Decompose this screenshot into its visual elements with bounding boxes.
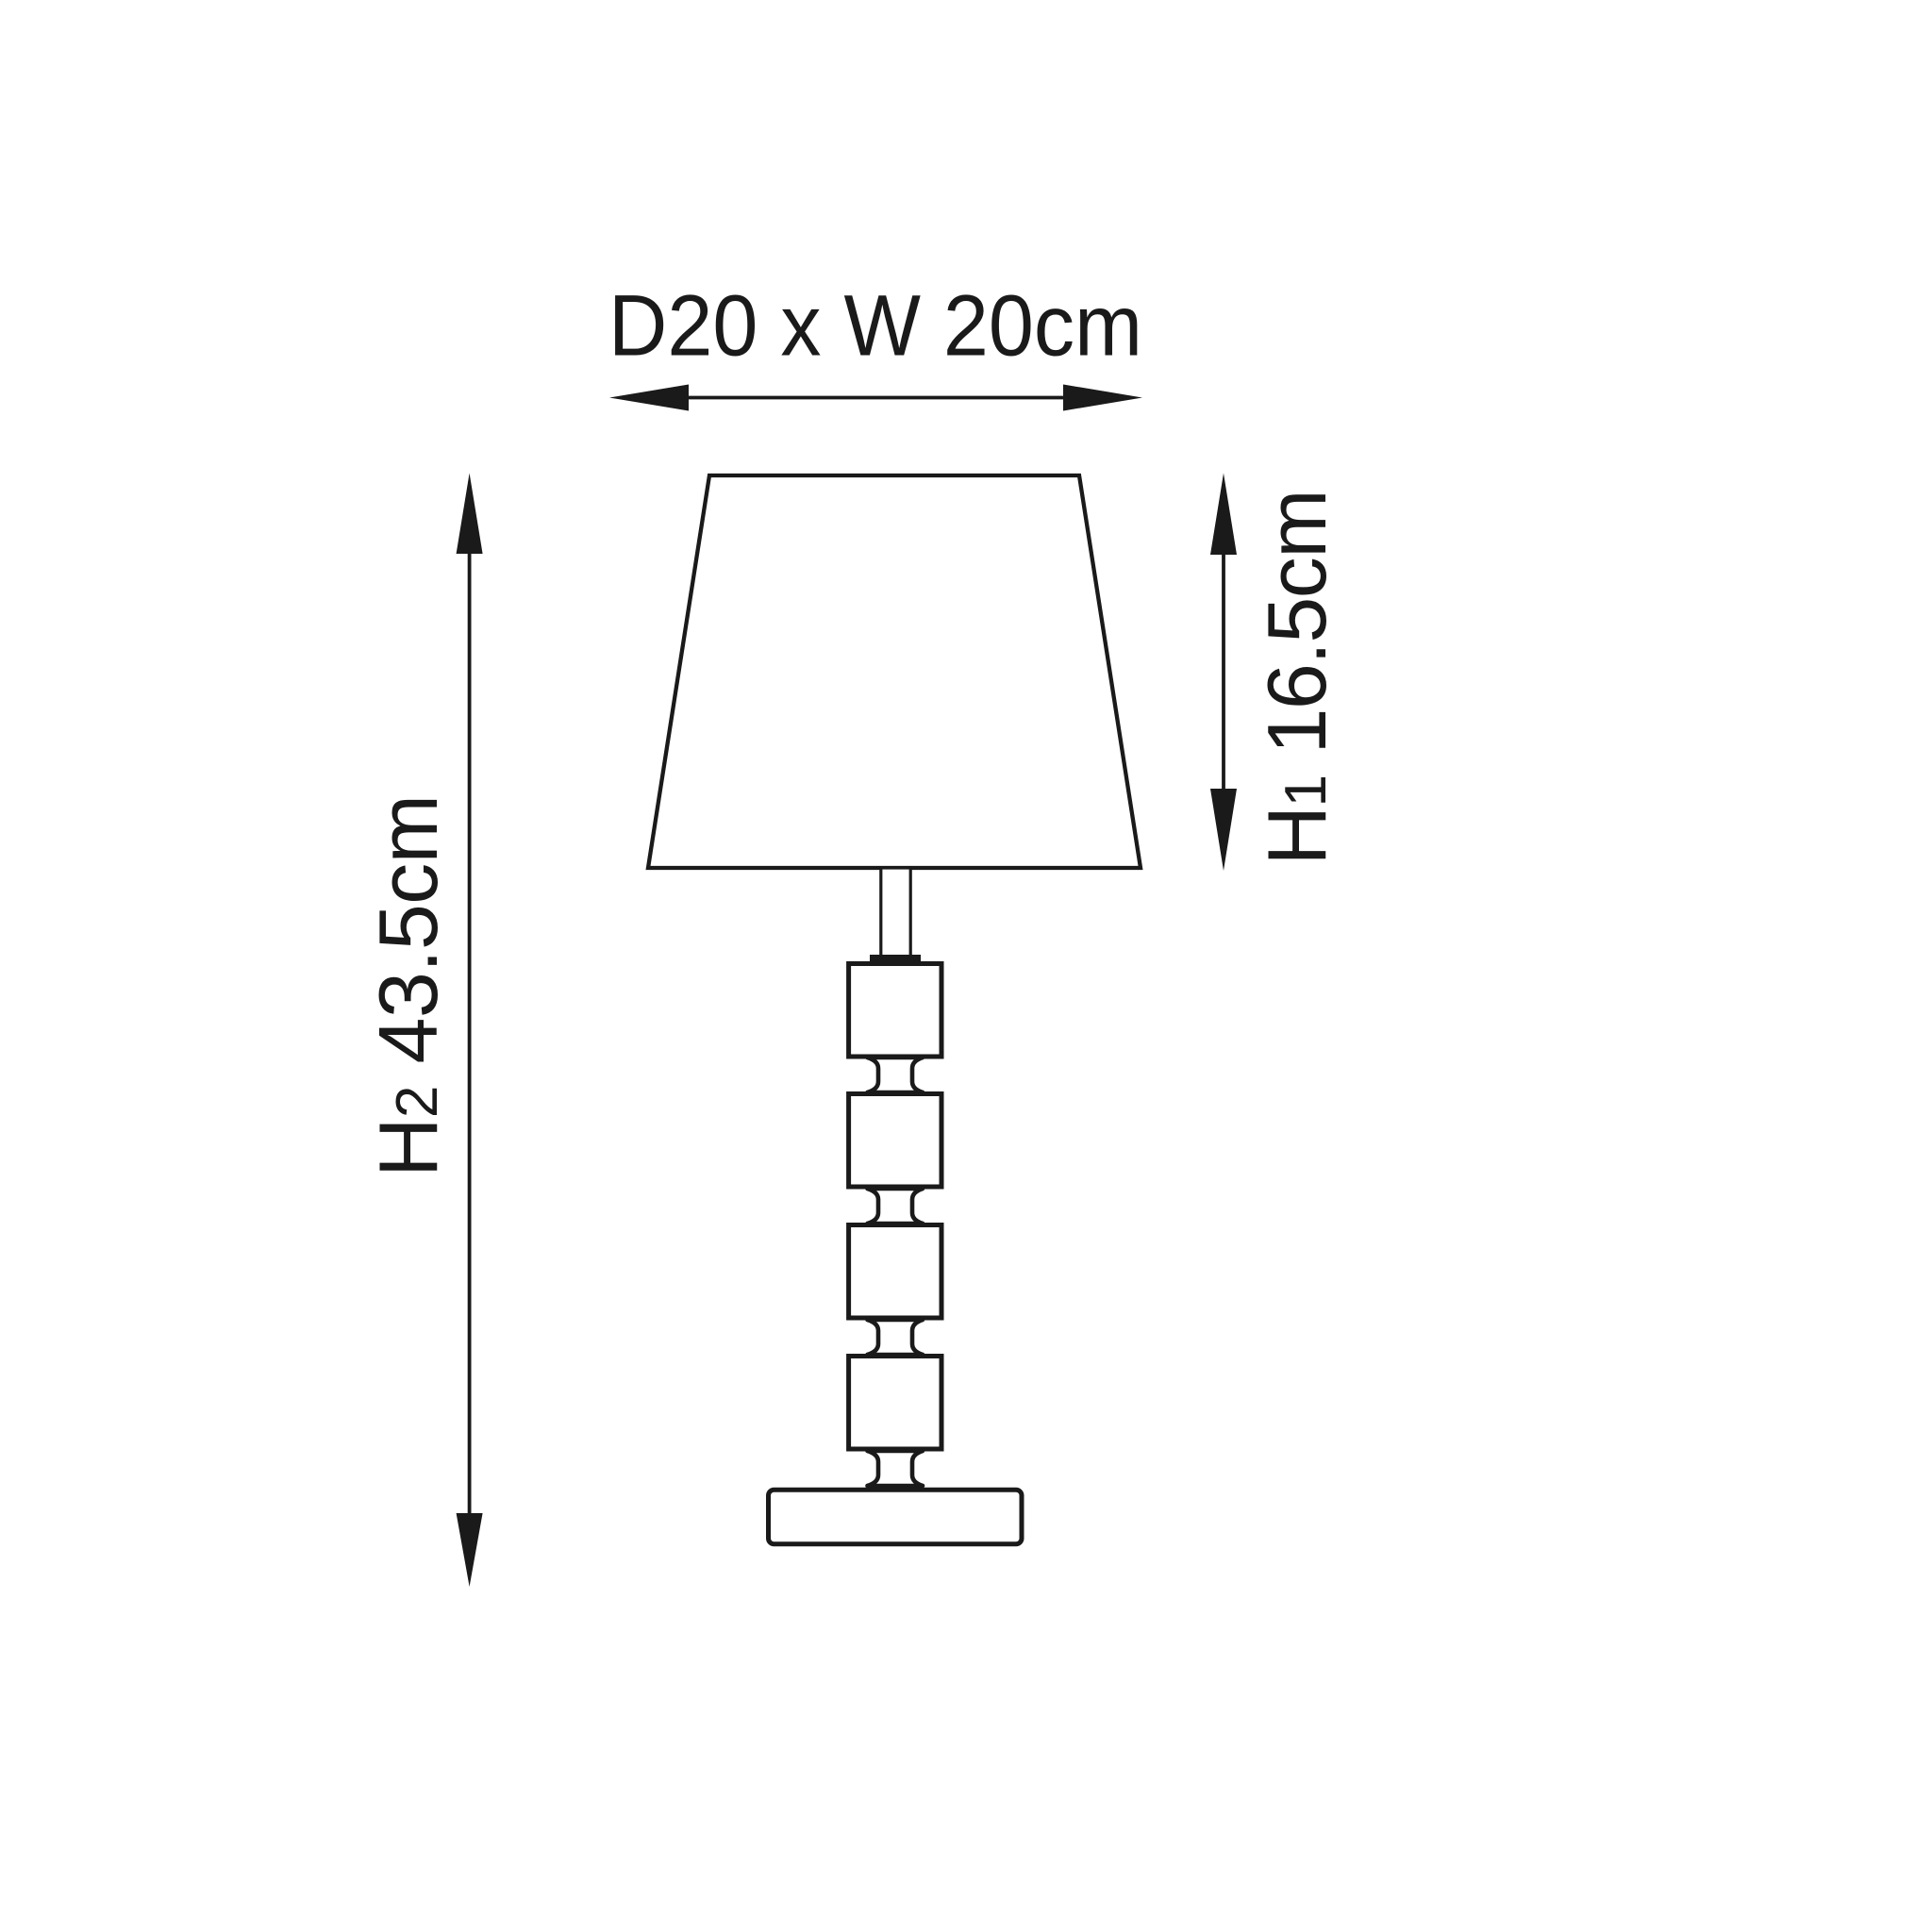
svg-text:D20 x W 20cm: D20 x W 20cm bbox=[608, 278, 1142, 375]
svg-text:H2 43.5cm: H2 43.5cm bbox=[361, 795, 455, 1177]
svg-text:H1 16.5cm: H1 16.5cm bbox=[1250, 491, 1343, 866]
